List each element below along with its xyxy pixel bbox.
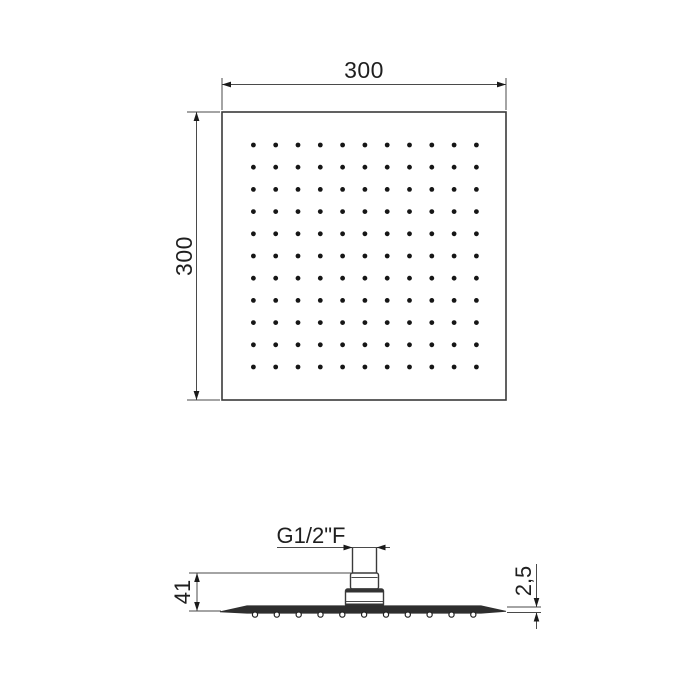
spray-hole [273,165,278,170]
nozzle [383,612,388,617]
nozzle [427,612,432,617]
spray-hole [273,320,278,325]
fitting-body-band-top [346,590,383,593]
spray-hole [318,298,323,303]
spray-hole [452,298,457,303]
spray-hole [363,342,368,347]
side-view: G1/2"F 41 [170,523,541,629]
spray-hole [251,365,256,370]
spray-hole [429,187,434,192]
spray-hole [407,276,412,281]
spray-hole [318,342,323,347]
spray-hole [474,254,479,259]
spray-hole [340,143,345,148]
spray-hole [407,254,412,259]
spray-hole [273,365,278,370]
arrowhead-left [377,545,386,551]
spray-hole [429,342,434,347]
dim-thread: G1/2"F [277,523,390,550]
spray-hole [407,320,412,325]
spray-hole [429,276,434,281]
spray-hole [273,254,278,259]
spray-hole [340,342,345,347]
thickness-value: 2,5 [511,566,536,597]
dim-side-height: 41 [170,573,352,611]
spray-hole [340,320,345,325]
spray-hole [251,143,256,148]
spray-hole [385,298,390,303]
spray-hole [296,209,301,214]
spray-hole [340,187,345,192]
spray-hole [296,143,301,148]
spray-hole [296,187,301,192]
spray-hole [452,143,457,148]
spray-hole [429,254,434,259]
spray-hole [385,365,390,370]
spray-hole [385,320,390,325]
spray-hole [251,342,256,347]
spray-hole [429,231,434,236]
spray-hole [296,298,301,303]
dim-top-width: 300 [222,57,506,110]
spray-hole [385,143,390,148]
arrowhead-right [497,82,506,88]
arrowhead-left [222,82,231,88]
spray-hole [296,365,301,370]
arrowhead-up [194,573,200,582]
spray-hole [407,342,412,347]
spray-hole [452,320,457,325]
spray-hole [363,276,368,281]
spray-hole [385,276,390,281]
nozzle [340,612,345,617]
spray-hole [340,298,345,303]
spray-hole [429,165,434,170]
shower-head-technical-drawing: 300 300 G1/2"F [0,0,700,700]
spray-hole [318,209,323,214]
spray-hole [474,231,479,236]
spray-hole [318,231,323,236]
spray-hole [452,209,457,214]
thread-size-label: G1/2"F [277,523,346,548]
spray-hole [273,298,278,303]
spray-hole [474,342,479,347]
spray-hole [407,298,412,303]
spray-hole [340,254,345,259]
left-height-value: 300 [171,236,197,276]
drawing-svg: 300 300 G1/2"F [0,0,700,700]
spray-hole [340,231,345,236]
spray-hole [318,365,323,370]
spray-hole [429,143,434,148]
spray-hole [340,165,345,170]
nozzle [405,612,410,617]
spray-hole [474,298,479,303]
nozzle [274,612,279,617]
spray-hole [474,276,479,281]
spray-hole [318,254,323,259]
spray-hole [407,365,412,370]
spray-hole [318,187,323,192]
spray-hole [452,342,457,347]
top-width-value: 300 [344,57,384,83]
spray-hole [363,165,368,170]
nozzle [471,612,476,617]
spray-hole [407,143,412,148]
spray-hole [452,254,457,259]
spray-hole [407,187,412,192]
nozzle [362,612,367,617]
inlet-fitting [346,548,384,607]
spray-hole [407,209,412,214]
spray-hole [296,254,301,259]
spray-hole [273,231,278,236]
spray-hole [474,320,479,325]
spray-hole [251,209,256,214]
nozzle [449,612,454,617]
spray-hole [363,365,368,370]
spray-hole [385,209,390,214]
spray-hole [296,165,301,170]
spray-hole [296,276,301,281]
spray-hole [296,231,301,236]
spray-hole [429,365,434,370]
spray-hole [318,143,323,148]
side-height-value: 41 [170,580,195,604]
spray-hole [474,143,479,148]
top-view: 300 300 [171,57,506,400]
spray-hole [363,187,368,192]
spray-hole [273,209,278,214]
arrowhead-down [534,598,540,607]
spray-hole [452,231,457,236]
spray-hole [363,209,368,214]
spray-hole [251,165,256,170]
spray-hole [251,276,256,281]
dim-left-height: 300 [171,112,220,400]
spray-hole [385,231,390,236]
spray-hole [251,254,256,259]
dim-thickness: 2,5 [507,564,541,629]
spray-hole [340,365,345,370]
spray-hole [296,320,301,325]
spray-hole [407,231,412,236]
nozzle [296,612,301,617]
spray-hole [273,342,278,347]
spray-hole [251,320,256,325]
arrowhead-up [534,613,540,622]
spray-hole [452,187,457,192]
spray-hole [273,143,278,148]
spray-hole [363,143,368,148]
spray-hole [318,320,323,325]
spray-hole [474,187,479,192]
spray-hole [429,298,434,303]
spray-hole [407,165,412,170]
spray-hole [340,209,345,214]
spray-hole [452,276,457,281]
spray-hole [385,254,390,259]
nozzle [318,612,323,617]
spray-hole [385,187,390,192]
spray-hole [385,342,390,347]
spray-hole [251,231,256,236]
spray-hole [340,276,345,281]
arrowhead-down [194,602,200,611]
arrowhead-right [344,545,353,551]
spray-hole [363,320,368,325]
spray-hole [251,187,256,192]
spray-hole [318,276,323,281]
nozzle [252,612,257,617]
spray-hole [273,276,278,281]
spray-hole [363,231,368,236]
spray-hole [385,165,390,170]
spray-hole [429,209,434,214]
spray-hole [251,298,256,303]
arrowhead-down [194,391,200,400]
spray-hole [363,254,368,259]
spray-hole [474,365,479,370]
spray-hole [363,298,368,303]
fitting-nut [351,573,379,589]
spray-hole [296,342,301,347]
spray-hole [452,365,457,370]
arrowhead-up [194,112,200,121]
spray-hole [452,165,457,170]
spray-hole [474,209,479,214]
spray-hole [429,320,434,325]
spray-hole [318,165,323,170]
spray-hole [474,165,479,170]
spray-hole [273,187,278,192]
